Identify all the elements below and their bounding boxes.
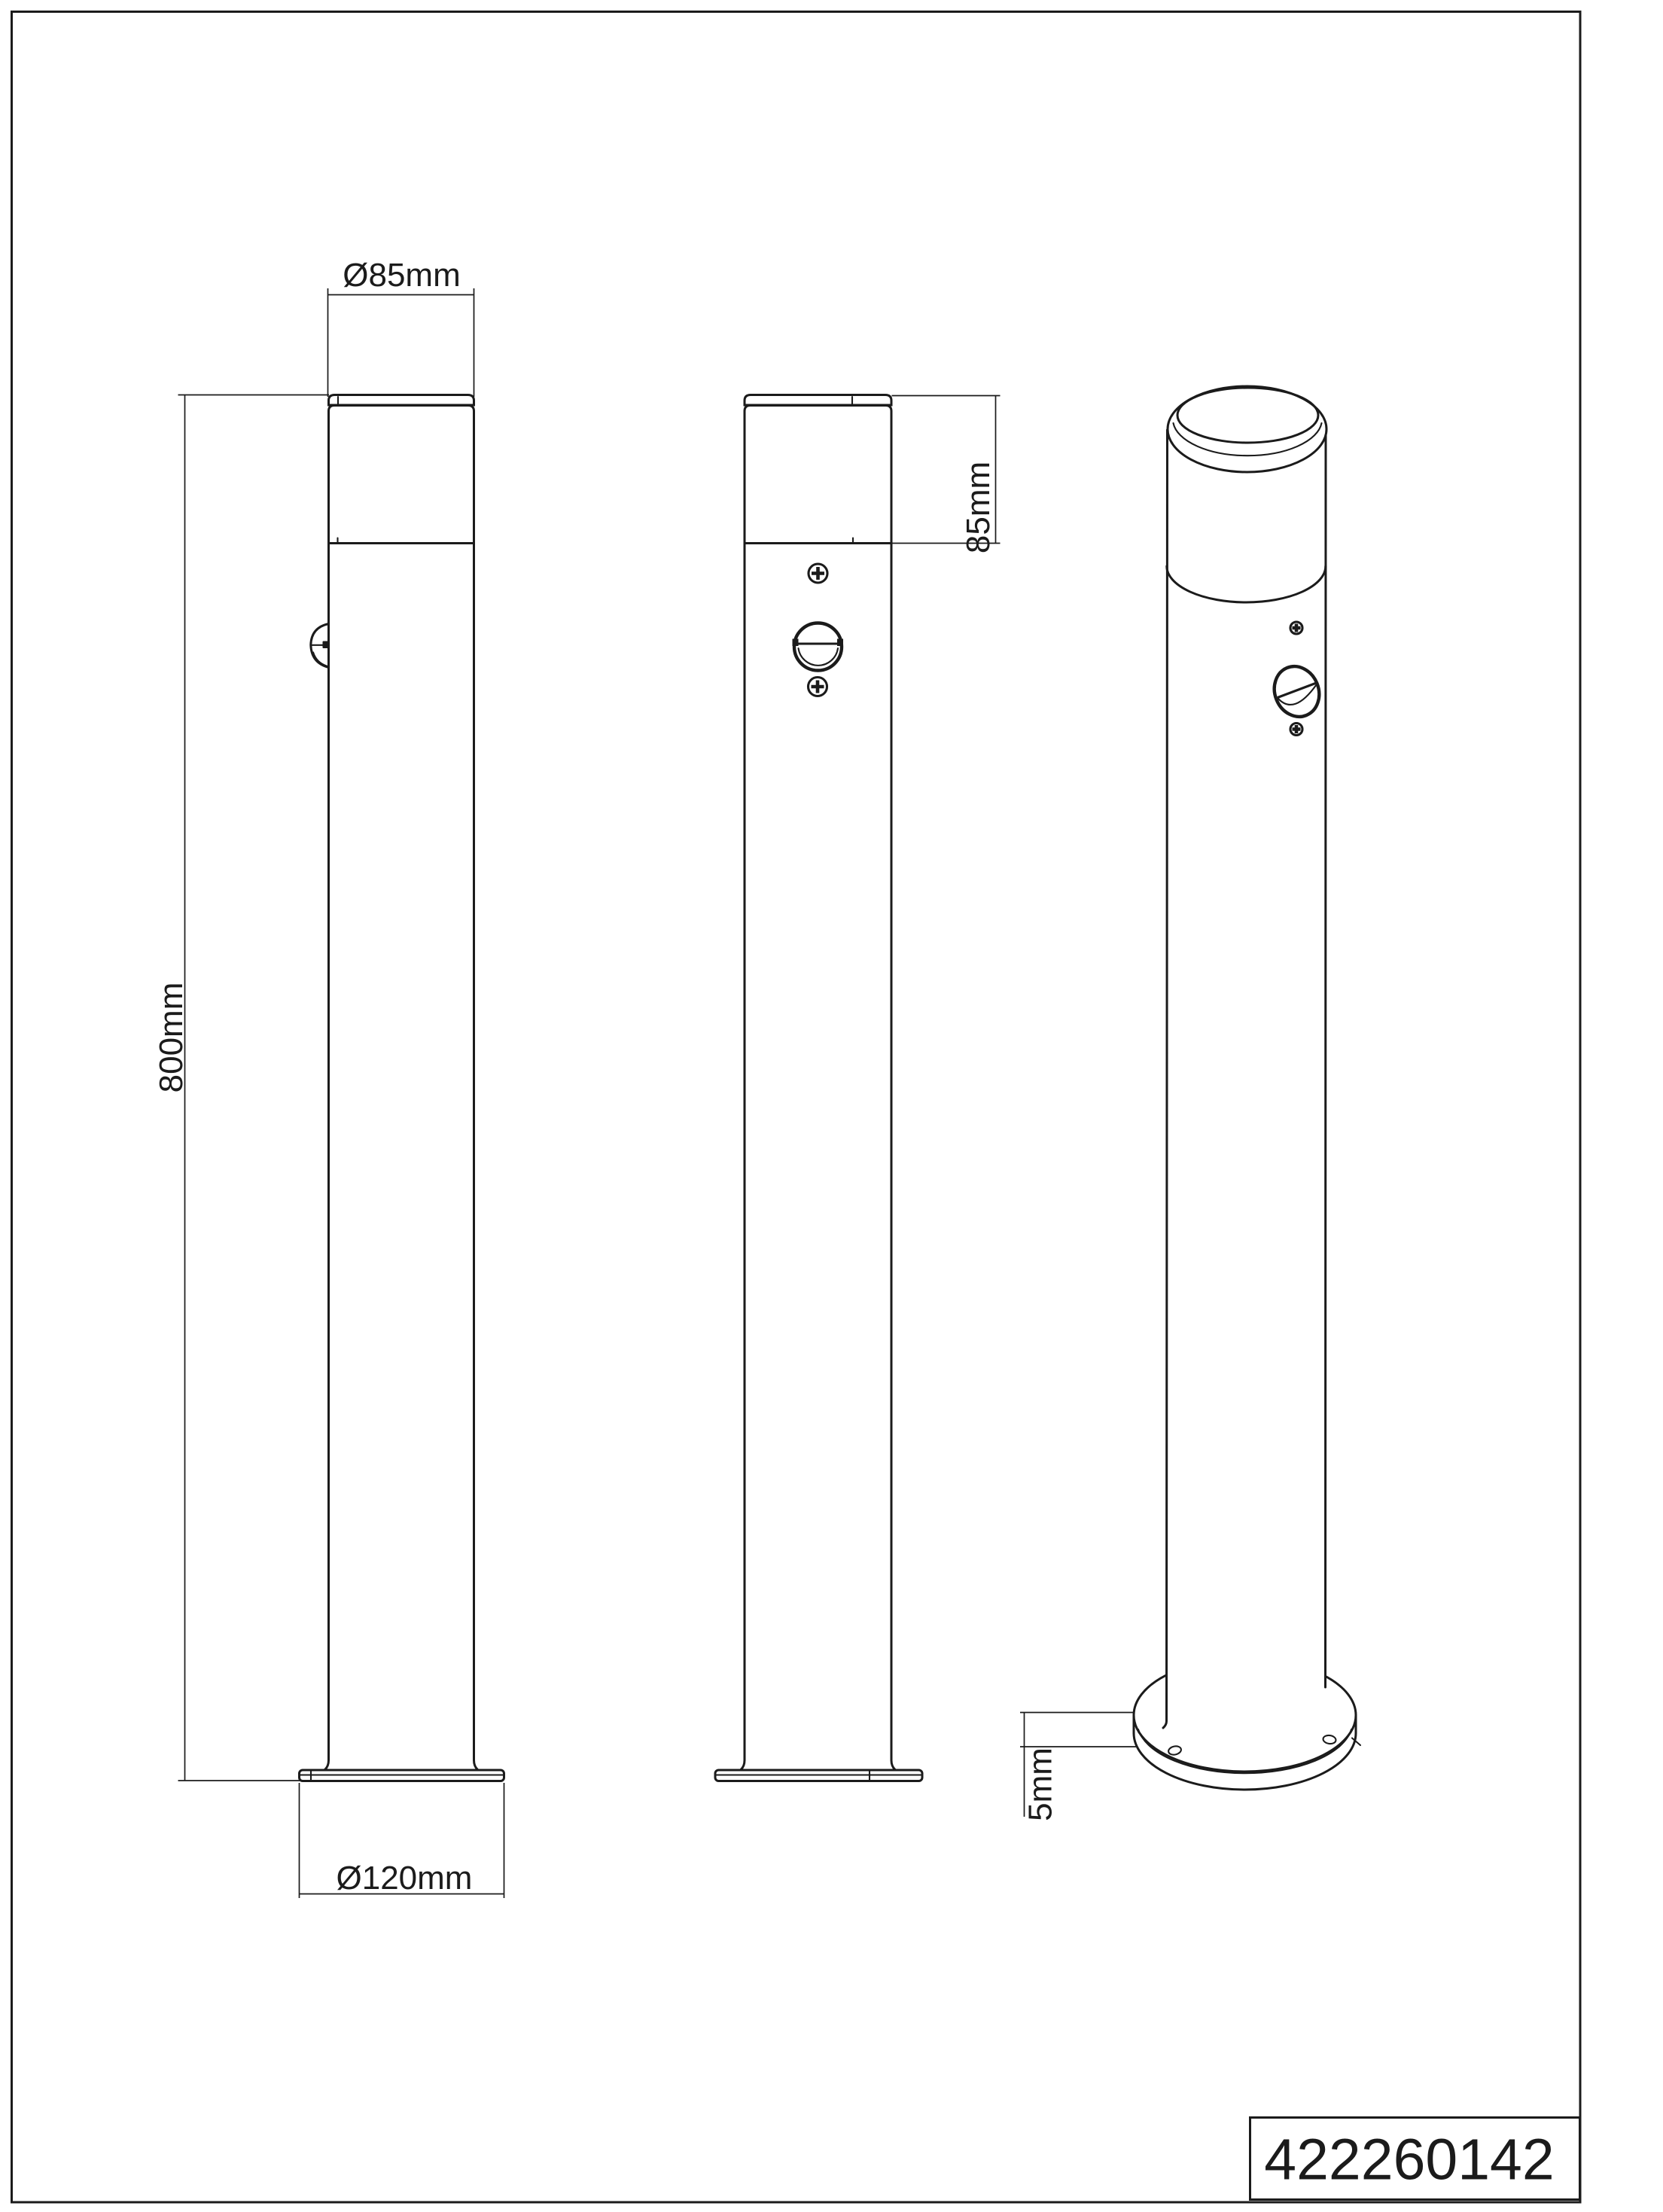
front-view bbox=[715, 395, 922, 1781]
post-right-edge bbox=[891, 544, 895, 1770]
sensor-tab-left bbox=[793, 639, 799, 647]
dim-overall-height: 800mm bbox=[153, 395, 329, 1781]
dim-label-top-diameter: Ø85mm bbox=[343, 257, 460, 294]
part-number: 422260142 bbox=[1264, 2128, 1554, 2192]
dim-base-thickness: 5mm bbox=[1020, 1713, 1136, 1821]
sensor-ring bbox=[794, 623, 842, 671]
post-right-edge bbox=[474, 544, 478, 1770]
dim-label-base-thickness: 5mm bbox=[1022, 1747, 1059, 1821]
page-border bbox=[12, 12, 1581, 2203]
technical-drawing: Ø85mm 800mm Ø120mm bbox=[0, 0, 1663, 2212]
perspective-view bbox=[1134, 386, 1360, 1790]
cylinder-body-fill bbox=[1167, 452, 1326, 1719]
extension-lines bbox=[1020, 1713, 1136, 1747]
post-left-edge bbox=[741, 544, 745, 1770]
cylinder-right-edge bbox=[1326, 430, 1326, 1687]
sensor-tab-right bbox=[837, 639, 843, 647]
top-cap bbox=[745, 395, 891, 406]
extension-lines bbox=[178, 395, 330, 1781]
extension-lines bbox=[328, 288, 474, 397]
post-left-edge bbox=[325, 544, 329, 1770]
drawing-sheet: Ø85mm 800mm Ø120mm bbox=[0, 0, 1663, 2212]
sensor-tab bbox=[323, 641, 329, 649]
top-cap bbox=[329, 395, 474, 406]
dim-label-base-diameter: Ø120mm bbox=[337, 1860, 473, 1897]
sensor-dome-inner-arc bbox=[799, 648, 839, 666]
screw-bottom bbox=[809, 678, 827, 696]
diffuser-section bbox=[329, 406, 474, 544]
motion-sensor-side bbox=[311, 624, 329, 668]
dim-base-diameter: Ø120mm bbox=[300, 1783, 504, 1898]
part-number-box: 422260142 bbox=[1250, 2118, 1580, 2200]
dim-top-diameter: Ø85mm bbox=[328, 257, 474, 397]
side-view bbox=[300, 395, 504, 1781]
dim-label-head-height: 85mm bbox=[960, 462, 997, 553]
motion-sensor-front bbox=[793, 623, 844, 671]
dim-head-height: 85mm bbox=[892, 396, 1001, 554]
cylinder-left-edge bbox=[1163, 430, 1168, 1728]
screw-top bbox=[809, 564, 827, 583]
dim-label-overall-height: 800mm bbox=[153, 983, 190, 1093]
diffuser-section bbox=[745, 406, 891, 544]
